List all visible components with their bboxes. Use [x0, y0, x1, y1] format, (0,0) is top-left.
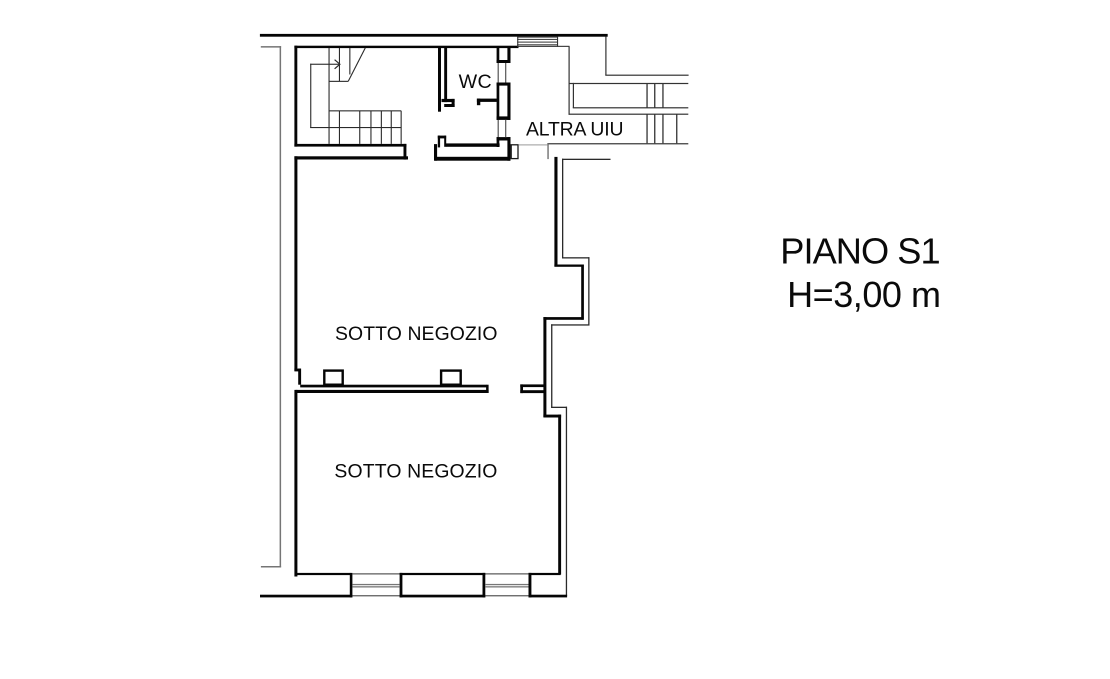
svg-text:WC: WC — [459, 71, 492, 93]
svg-text:H=3,00 m: H=3,00 m — [787, 274, 941, 315]
svg-text:PIANO S1: PIANO S1 — [780, 231, 940, 272]
svg-text:ALTRA UIU: ALTRA UIU — [526, 118, 624, 140]
svg-text:SOTTO NEGOZIO: SOTTO NEGOZIO — [334, 461, 497, 483]
svg-text:SOTTO NEGOZIO: SOTTO NEGOZIO — [335, 323, 498, 345]
